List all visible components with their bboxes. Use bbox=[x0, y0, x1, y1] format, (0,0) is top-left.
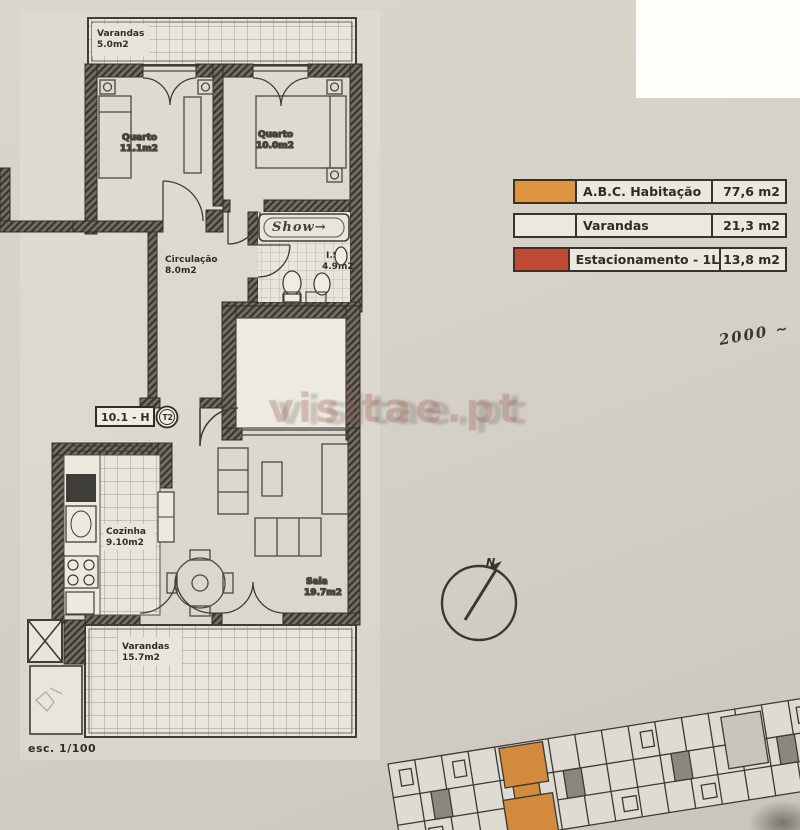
hallway-name: Circulação bbox=[165, 255, 218, 265]
area-legend: A.B.C. Habitação 77,6 m2 Varandas 21,3 m… bbox=[513, 179, 787, 281]
varandas-label: Varandas bbox=[577, 215, 711, 236]
kitchen-name: Cozinha bbox=[106, 527, 146, 537]
balcony-bottom-name: Varandas bbox=[122, 642, 169, 652]
legend-row-estacionamento: Estacionamento - 1L 13,8 m2 bbox=[513, 247, 787, 272]
handwritten-note: 2000 ~ bbox=[717, 319, 792, 349]
legend-row-habitacao: A.B.C. Habitação 77,6 m2 bbox=[513, 179, 787, 204]
bedroom1-name: Quarto bbox=[122, 133, 157, 143]
legend-row-varandas: Varandas 21,3 m2 bbox=[513, 213, 787, 238]
service-block bbox=[28, 620, 85, 734]
living-area: 19.7m2 bbox=[304, 588, 342, 598]
room-kitchen: Cozinha 9.10m2 bbox=[64, 455, 174, 615]
floorplan-scan: Varandas 5.0m2 bbox=[0, 0, 800, 830]
bedroom1-area: 11.1m2 bbox=[120, 144, 158, 154]
varandas-swatch bbox=[515, 215, 577, 236]
bedroom2-name: Quarto bbox=[258, 130, 293, 140]
north-label: N bbox=[486, 556, 495, 569]
unit-code-label: 10.1 - H bbox=[101, 411, 150, 424]
stairwell bbox=[30, 666, 82, 734]
room-bathroom: Show→ I.S. 4.9m2 bbox=[258, 212, 354, 302]
hallway-area: 8.0m2 bbox=[165, 266, 197, 276]
photo-shadow bbox=[748, 800, 800, 830]
habitacao-value: 77,6 m2 bbox=[711, 181, 785, 202]
scale-label: esc. 1/100 bbox=[28, 742, 96, 755]
room-balcony-top: Varandas 5.0m2 bbox=[88, 18, 356, 65]
balcony-bottom-area: 15.7m2 bbox=[122, 653, 160, 663]
estacionamento-swatch bbox=[515, 249, 570, 270]
balcony-top-area: 5.0m2 bbox=[97, 40, 129, 50]
estacionamento-value: 13,8 m2 bbox=[719, 249, 785, 270]
key-plan bbox=[388, 696, 800, 830]
typology-badge: T2 bbox=[157, 407, 178, 428]
room-balcony-bottom: Varandas 15.7m2 bbox=[85, 625, 356, 737]
habitacao-swatch bbox=[515, 181, 577, 202]
bedroom2-area: 10.0m2 bbox=[256, 141, 294, 151]
typology-label: T2 bbox=[163, 413, 173, 422]
entrance-labels: 10.1 - H T2 bbox=[96, 407, 178, 428]
watermark: visitae.pt bbox=[268, 386, 568, 432]
north-compass-icon: N bbox=[442, 556, 516, 640]
balcony-top-name: Varandas bbox=[97, 29, 144, 39]
stove-icon bbox=[66, 474, 96, 502]
bathtub-handwritten-note: Show→ bbox=[272, 220, 327, 235]
estacionamento-label: Estacionamento - 1L bbox=[570, 249, 720, 270]
varandas-value: 21,3 m2 bbox=[711, 215, 785, 236]
kitchen-area: 9.10m2 bbox=[106, 538, 144, 548]
habitacao-label: A.B.C. Habitação bbox=[577, 181, 711, 202]
living-name: Sala bbox=[306, 577, 328, 587]
toilet-icon bbox=[283, 271, 301, 295]
washbasin-icon bbox=[335, 247, 347, 265]
